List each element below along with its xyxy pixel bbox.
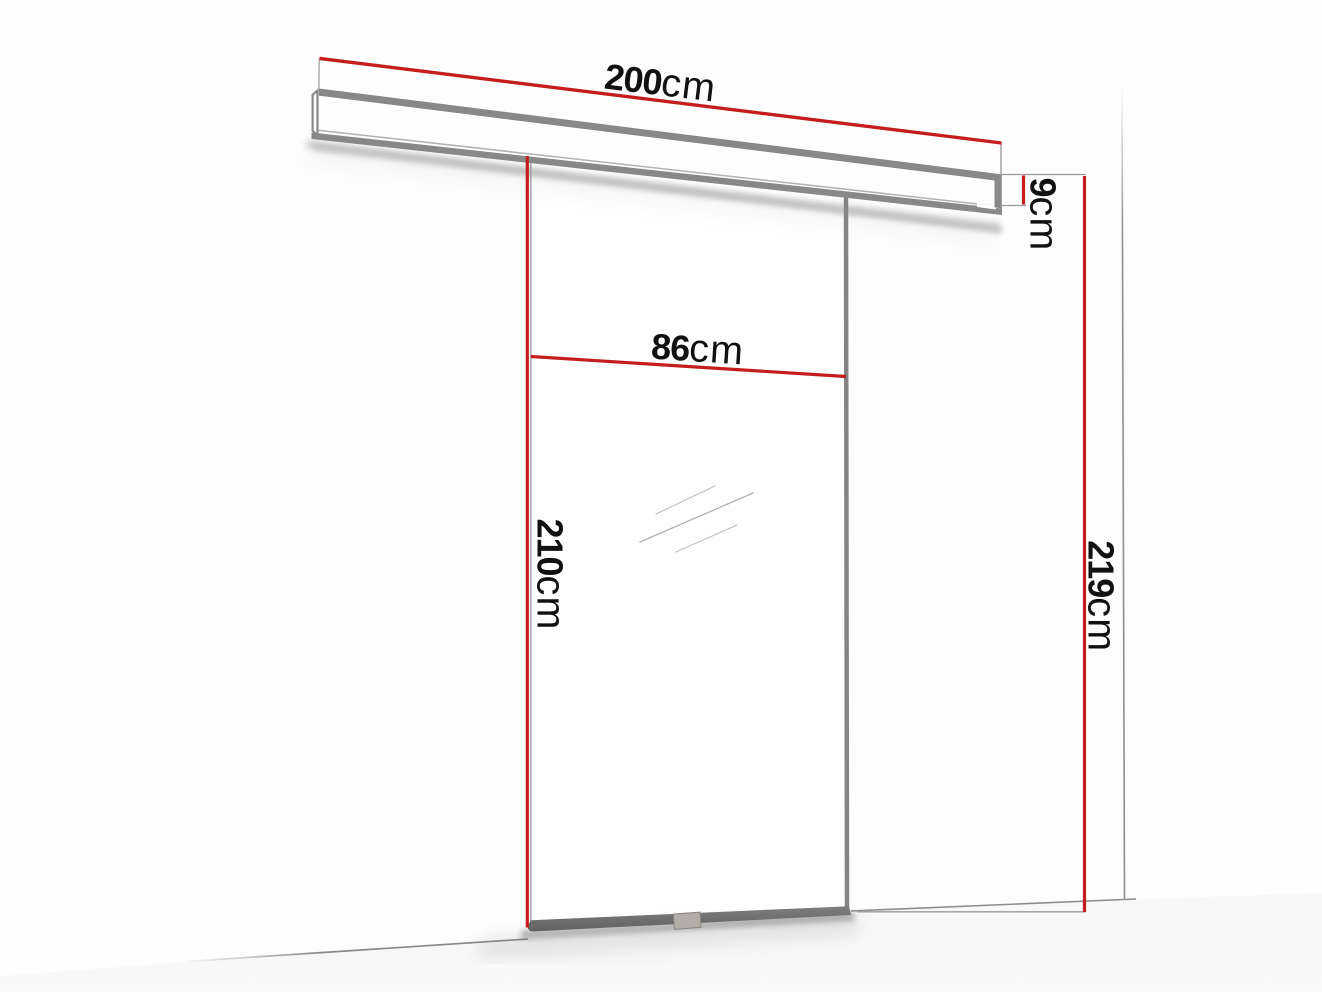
svg-text:86cm: 86cm xyxy=(650,324,746,374)
svg-text:219cm: 219cm xyxy=(1080,540,1124,652)
svg-text:210cm: 210cm xyxy=(529,518,573,630)
svg-text:9cm: 9cm xyxy=(1022,177,1066,251)
